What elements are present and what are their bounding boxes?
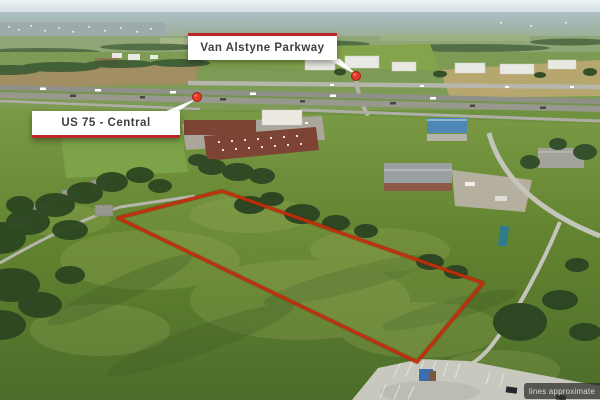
highway-pin-icon [193,93,202,102]
aerial-listing-photo: Van Alstyne Parkway US 75 - Central line… [0,0,600,400]
disclaimer-badge: lines approximate [524,383,600,399]
parkway-callout: Van Alstyne Parkway [188,33,337,60]
disclaimer-text: lines approximate [529,387,595,396]
parkway-pin-icon [352,72,361,81]
parkway-callout-label: Van Alstyne Parkway [200,42,324,54]
highway-callout-label: US 75 - Central [61,117,150,129]
blue-roof-building [427,118,467,141]
aerial-scene [0,0,600,400]
highway-callout: US 75 - Central [32,111,180,138]
